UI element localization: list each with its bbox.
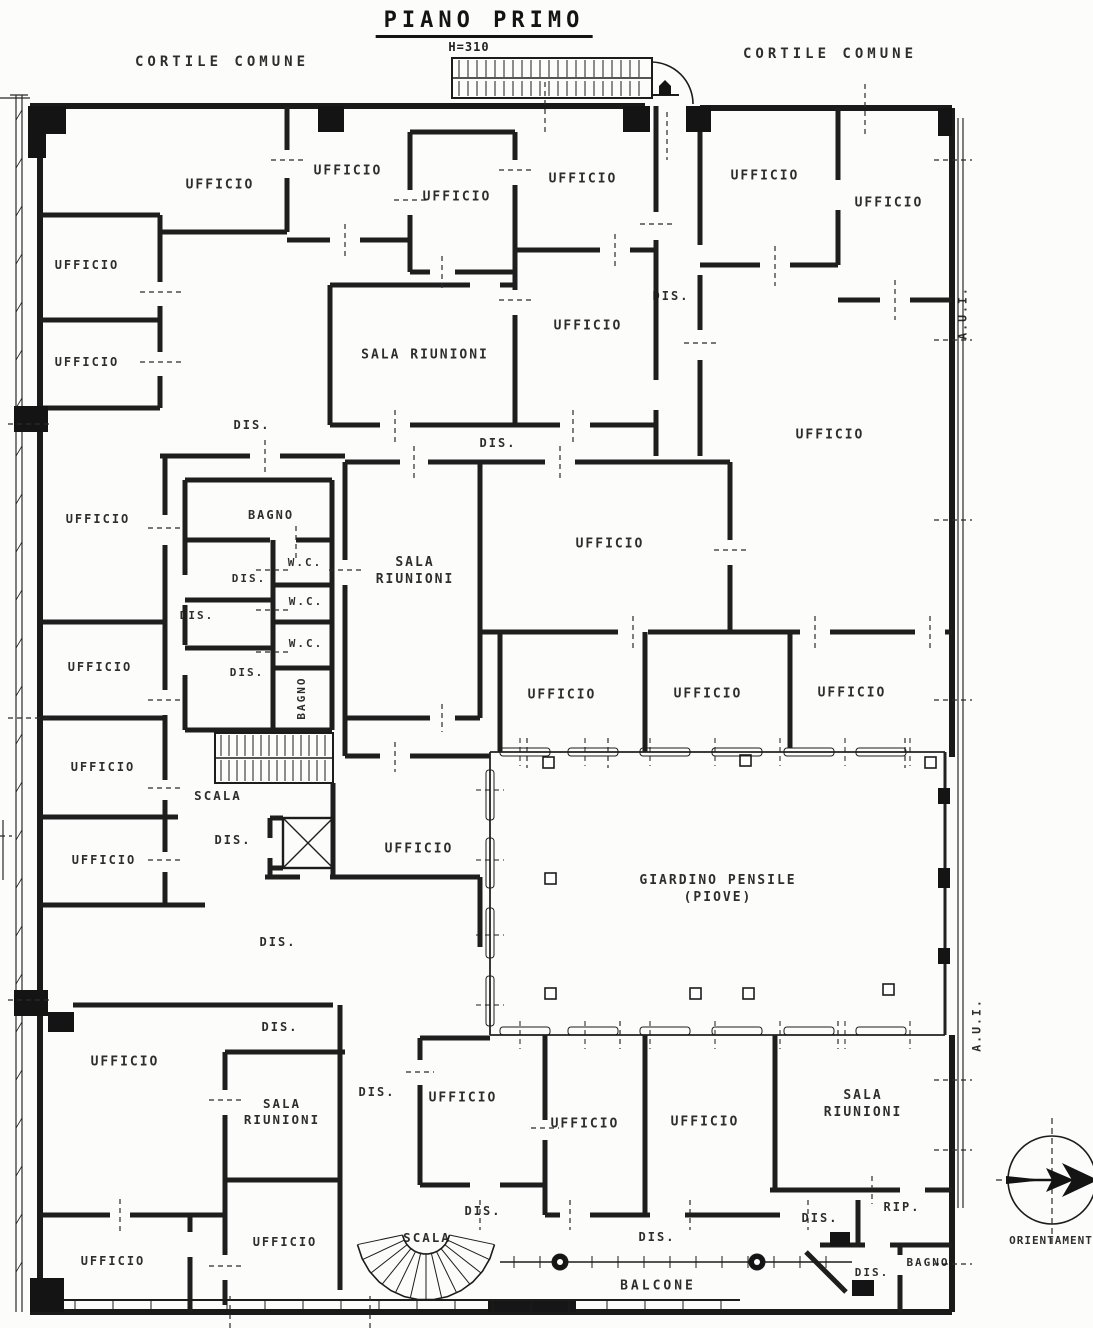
corridor-label-dis: DIS. <box>234 418 271 434</box>
room-label-bagno: BAGNO <box>248 508 294 524</box>
shaft-label-aui: A.U.I. <box>970 998 985 1052</box>
corridor-label-dis: DIS. <box>359 1085 396 1101</box>
corridor-label-dis: DIS. <box>262 1020 299 1036</box>
shaft-label-aui: A.U.I. <box>956 286 971 340</box>
page-title: PIANO PRIMO <box>376 8 593 38</box>
room-label-ufficio: UFFICIO <box>423 190 492 207</box>
room-label-sala-riunioni: SALA RIUNIONI <box>361 348 489 365</box>
stairs-label-scala: SCALA <box>194 788 242 804</box>
room-label-ufficio: UFFICIO <box>186 178 255 195</box>
room-label-ufficio: UFFICIO <box>66 512 131 528</box>
room-label-ufficio: UFFICIO <box>528 688 597 705</box>
floor-plan-page: PIANO PRIMO H=310 CORTILE COMUNECORTILE … <box>0 0 1093 1328</box>
room-label-ufficio: UFFICIO <box>91 1055 160 1072</box>
room-label-ufficio: UFFICIO <box>253 1235 318 1251</box>
corridor-label-dis: DIS. <box>802 1211 839 1227</box>
room-label-bagno: BAGNO <box>906 1256 949 1270</box>
room-label-ufficio: UFFICIO <box>68 660 133 676</box>
corridor-label-dis: DIS. <box>230 666 265 680</box>
room-label-ufficio: UFFICIO <box>818 686 887 703</box>
garden-label: GIARDINO PENSILE (PIOVE) <box>639 873 796 907</box>
room-label-ufficio: UFFICIO <box>731 169 800 186</box>
room-label-ufficio: UFFICIO <box>71 760 136 776</box>
room-label-ufficio: UFFICIO <box>796 428 865 445</box>
title-block: PIANO PRIMO H=310 <box>376 8 593 54</box>
room-label-ufficio: UFFICIO <box>671 1115 740 1132</box>
height-label: H=310 <box>346 40 593 54</box>
top-stair <box>452 58 652 98</box>
room-label-ufficio: UFFICIO <box>554 319 623 336</box>
corridor-label-dis: DIS. <box>260 935 297 951</box>
room-label-wc: W.C. <box>289 595 324 609</box>
entry-symbol-icon <box>659 80 671 86</box>
room-label-ufficio: UFFICIO <box>55 355 120 371</box>
room-label-sala-riunioni: SALA RIUNIONI <box>244 1096 320 1129</box>
courtyard-label-right: CORTILE COMUNE <box>743 45 917 63</box>
room-label-rip: RIP. <box>884 1200 921 1216</box>
room-label-ufficio: UFFICIO <box>429 1091 498 1108</box>
elevator-shaft <box>283 818 333 868</box>
entry-door-arc <box>651 62 693 104</box>
corridor-label-dis: DIS. <box>639 1230 676 1246</box>
room-label-bagno: BAGNO <box>295 676 309 719</box>
scala-stair <box>215 733 333 783</box>
room-label-ufficio: UFFICIO <box>55 258 120 274</box>
floor-plan-drawing <box>0 0 1093 1328</box>
room-label-ufficio: UFFICIO <box>549 172 618 189</box>
stairs-label-scala: SCALA <box>403 1230 451 1246</box>
room-label-ufficio: UFFICIO <box>81 1254 146 1270</box>
courtyard-label-left: CORTILE COMUNE <box>135 53 309 71</box>
corridor-label-dis: DIS. <box>653 289 690 305</box>
compass <box>996 1118 1093 1246</box>
room-label-ufficio: UFFICIO <box>72 853 137 869</box>
balcony-label: BALCONE <box>620 1279 696 1296</box>
door-dashes <box>0 82 972 1328</box>
room-label-ufficio: UFFICIO <box>576 537 645 554</box>
corridor-label-dis: DIS. <box>855 1266 890 1280</box>
room-label-sala-riunioni: SALA RIUNIONI <box>824 1088 903 1122</box>
corridor-label-dis: DIS. <box>180 609 215 623</box>
interior-walls <box>40 106 952 1312</box>
compass-label: ORIENTAMENT <box>1009 1234 1093 1248</box>
room-label-ufficio: UFFICIO <box>385 842 454 859</box>
corridor-label-dis: DIS. <box>232 572 267 586</box>
corridor-label-dis: DIS. <box>465 1204 502 1220</box>
corridor-label-dis: DIS. <box>480 436 517 452</box>
corridor-label-dis: DIS. <box>215 833 252 849</box>
room-label-wc: W.C. <box>289 637 324 651</box>
balcony-railing <box>60 1254 852 1312</box>
room-label-ufficio: UFFICIO <box>674 687 743 704</box>
room-label-sala-riunioni: SALA RIUNIONI <box>376 555 455 589</box>
room-label-ufficio: UFFICIO <box>855 196 924 213</box>
room-label-ufficio: UFFICIO <box>314 164 383 181</box>
exterior-walls <box>30 106 952 1312</box>
room-label-wc: W.C. <box>288 556 323 570</box>
room-label-ufficio: UFFICIO <box>551 1117 620 1134</box>
